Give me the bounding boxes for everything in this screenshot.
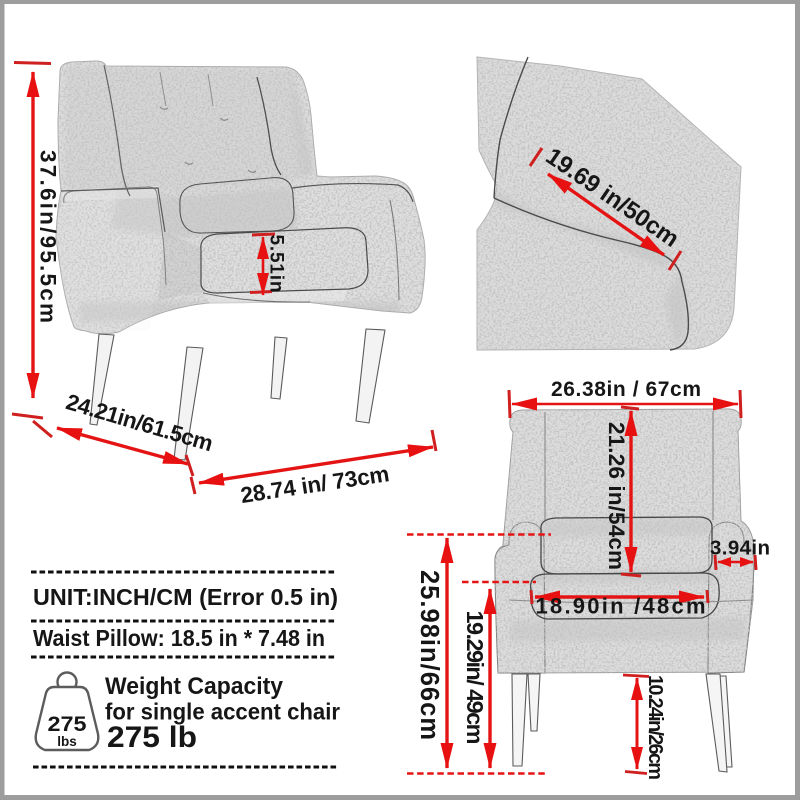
svg-text:18.90in /48cm: 18.90in /48cm: [536, 594, 706, 619]
svg-text:275: 275: [48, 713, 87, 736]
svg-text:3.94in: 3.94in: [710, 537, 770, 560]
svg-text:25.98in/66cm: 25.98in/66cm: [415, 570, 443, 740]
svg-text:Waist Pillow: 18.5 in * 7.48 i: Waist Pillow: 18.5 in * 7.48 in: [33, 625, 325, 651]
svg-text:10.24in/26cm: 10.24in/26cm: [644, 675, 666, 780]
svg-text:5.51in: 5.51in: [266, 235, 287, 293]
svg-text:19.29in/ 49cm: 19.29in/ 49cm: [462, 611, 488, 745]
svg-text:275 lb: 275 lb: [107, 721, 197, 754]
svg-text:26.38in / 67cm: 26.38in / 67cm: [551, 378, 701, 401]
svg-text:21.26 in/54cm: 21.26 in/54cm: [604, 422, 629, 570]
svg-text:37.6in/95.5cm: 37.6in/95.5cm: [36, 150, 61, 323]
svg-text:lbs: lbs: [57, 734, 77, 749]
svg-text:Weight Capacity: Weight Capacity: [105, 673, 284, 700]
svg-text:UNIT:INCH/CM (Error 0.5 in): UNIT:INCH/CM (Error 0.5 in): [33, 584, 338, 610]
